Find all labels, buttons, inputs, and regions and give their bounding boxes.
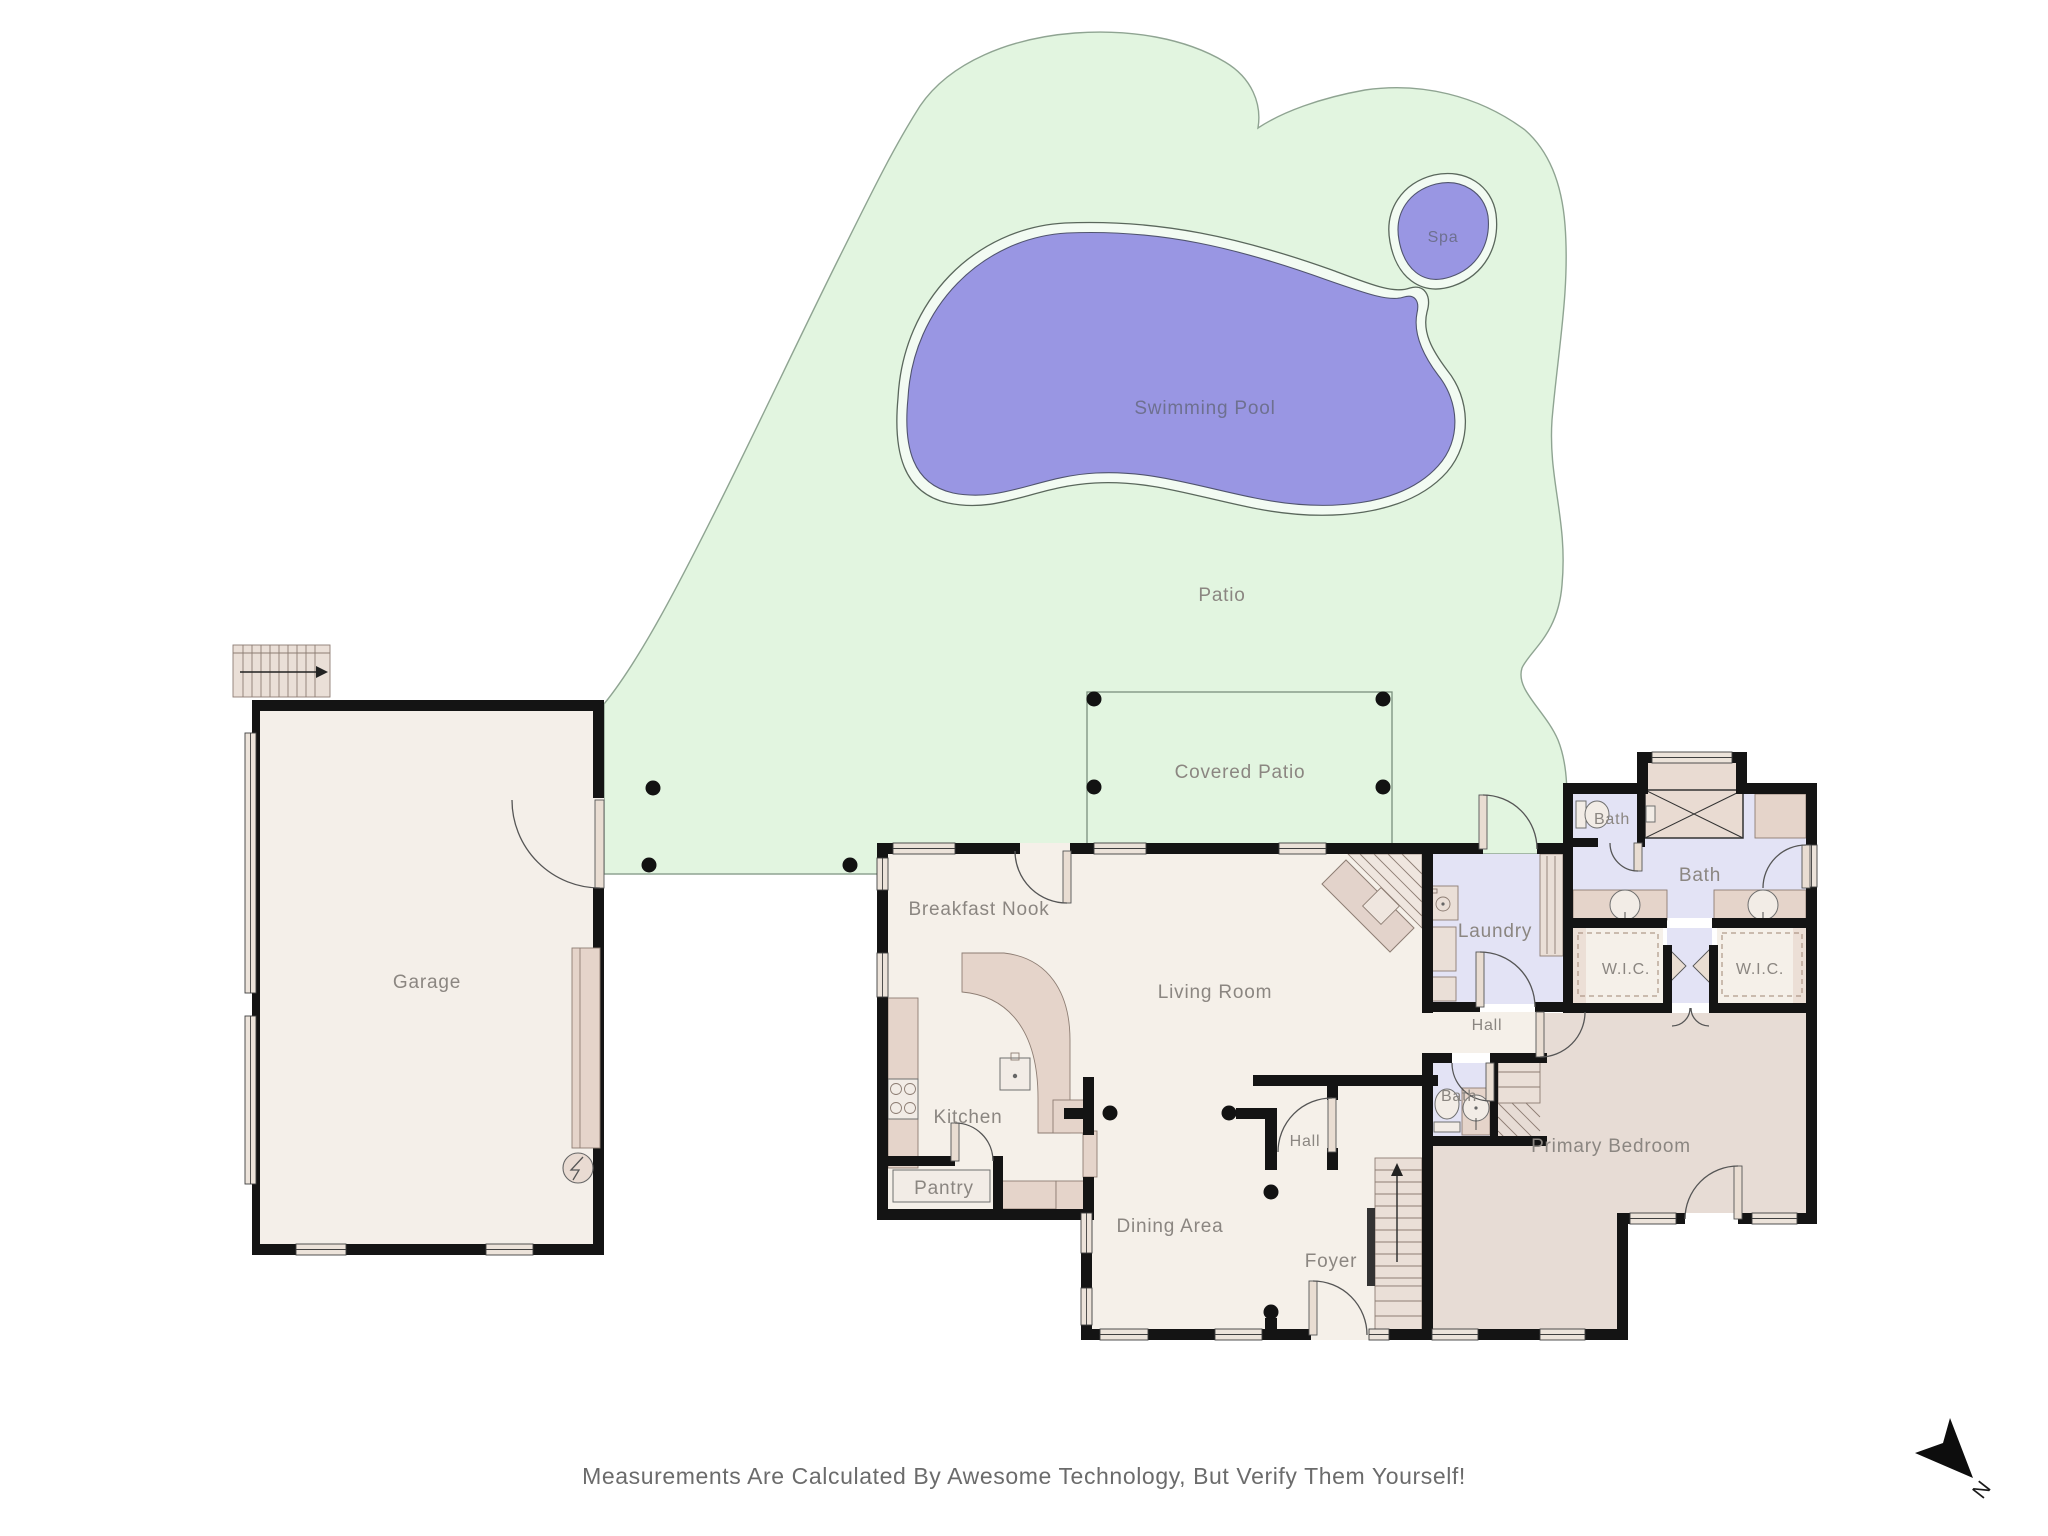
label-spa: Spa (1428, 229, 1459, 246)
label-kitchen: Kitchen (934, 1107, 1003, 1128)
patio-post (1376, 780, 1391, 795)
garage-workbench (572, 948, 600, 1148)
label-wic-right: W.I.C. (1736, 961, 1784, 978)
compass-north-label: N (1968, 1477, 1995, 1503)
wic-left-shelf (1573, 928, 1586, 1003)
label-hall-right: Hall (1472, 1017, 1503, 1034)
disclaimer-text: Measurements Are Calculated By Awesome T… (582, 1463, 1466, 1489)
label-living-room: Living Room (1158, 982, 1272, 1003)
vanity-right (1714, 890, 1806, 922)
label-bath-main: Bath (1679, 865, 1721, 886)
label-swimming-pool: Swimming Pool (1134, 398, 1275, 419)
wic-right-shelf (1793, 928, 1806, 1003)
label-covered-patio: Covered Patio (1175, 762, 1306, 783)
kitchen-counter-east (1083, 1131, 1097, 1177)
label-hall-center: Hall (1290, 1133, 1321, 1150)
stove-icon (888, 1079, 918, 1119)
label-patio: Patio (1198, 585, 1245, 606)
vanity-left (1573, 890, 1667, 922)
walkway-post (642, 858, 657, 873)
kitchen-sink-icon (1000, 1053, 1030, 1090)
walkway-post (843, 858, 858, 873)
label-breakfast-nook: Breakfast Nook (908, 899, 1049, 920)
label-foyer: Foyer (1305, 1251, 1358, 1272)
compass: N (1915, 1418, 1996, 1503)
foyer-stairs (1375, 1158, 1422, 1330)
garage (233, 645, 604, 1255)
compass-north-icon (1915, 1418, 1973, 1478)
shower-icon (1645, 790, 1743, 838)
floor-plan-svg: Spa Swimming Pool Patio Covered Patio Ga… (0, 0, 2048, 1536)
bath-cabinet (1755, 794, 1806, 838)
floor-plan-page: Spa Swimming Pool Patio Covered Patio Ga… (0, 0, 2048, 1536)
patio-post (1087, 692, 1102, 707)
label-bath-primary: Bath (1441, 1088, 1477, 1105)
water-heater-icon (563, 1153, 593, 1183)
label-bath-upper: Bath (1594, 811, 1630, 828)
label-dining-area: Dining Area (1116, 1216, 1223, 1237)
label-primary-bedroom: Primary Bedroom (1531, 1136, 1691, 1157)
kitchen-counter-south (1000, 1181, 1056, 1209)
patio-post (1376, 692, 1391, 707)
label-pantry: Pantry (914, 1178, 974, 1199)
label-garage: Garage (393, 972, 461, 993)
label-laundry: Laundry (1458, 921, 1532, 942)
garage-stairs (233, 645, 330, 697)
label-wic-left: W.I.C. (1602, 961, 1650, 978)
patio-post (1087, 780, 1102, 795)
laundry-cabinet (1540, 854, 1563, 956)
walkway-post (646, 781, 661, 796)
